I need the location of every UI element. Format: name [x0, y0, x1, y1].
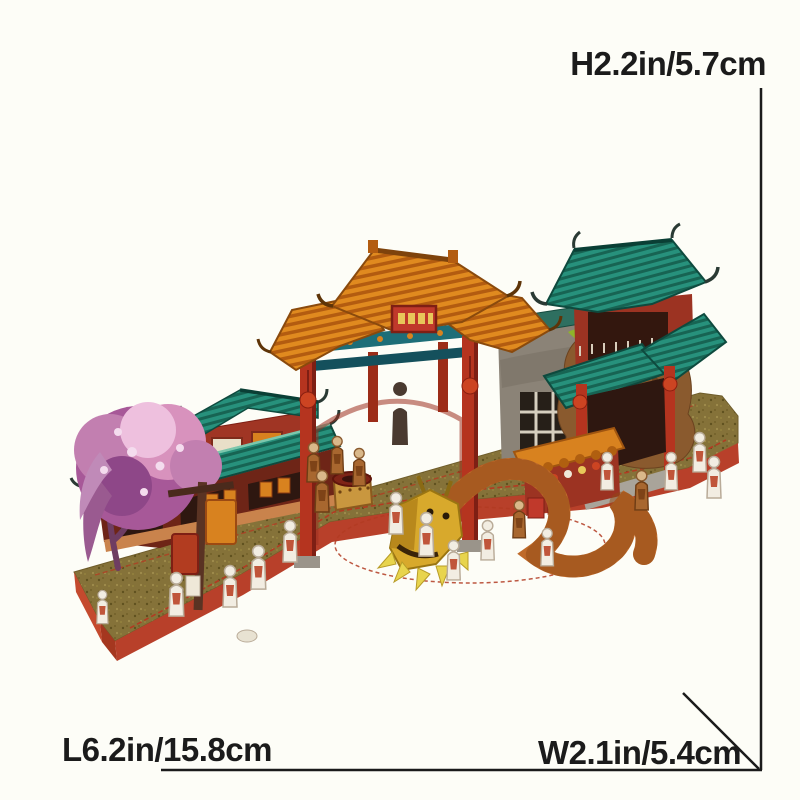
dimension-lines — [0, 0, 800, 800]
width-label: W2.1in/5.4cm — [538, 736, 741, 771]
length-label: L6.2in/15.8cm — [62, 733, 272, 768]
product-image: H2.2in/5.7cm L6.2in/15.8cm W2.1in/5.4cm — [0, 0, 800, 800]
height-label: H2.2in/5.7cm — [570, 47, 766, 82]
